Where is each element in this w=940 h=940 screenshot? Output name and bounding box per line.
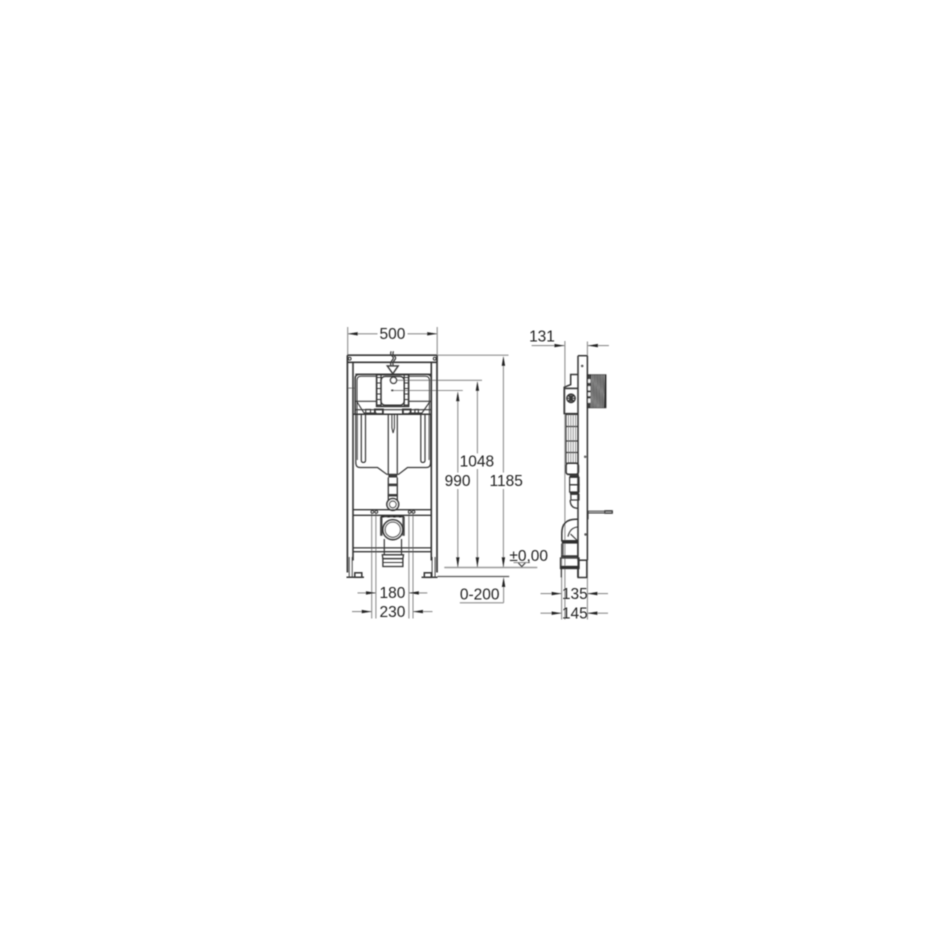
svg-text:1185: 1185 bbox=[490, 473, 523, 490]
svg-text:0-200: 0-200 bbox=[460, 586, 500, 603]
svg-text:500: 500 bbox=[379, 326, 405, 343]
svg-text:180: 180 bbox=[379, 585, 405, 602]
svg-text:131: 131 bbox=[529, 329, 555, 346]
svg-text:230: 230 bbox=[379, 604, 405, 621]
svg-text:1048: 1048 bbox=[460, 454, 494, 471]
svg-text:135: 135 bbox=[562, 586, 588, 603]
svg-text:990: 990 bbox=[445, 473, 471, 490]
svg-text:145: 145 bbox=[562, 606, 588, 623]
svg-text:±0,00: ±0,00 bbox=[509, 548, 548, 565]
